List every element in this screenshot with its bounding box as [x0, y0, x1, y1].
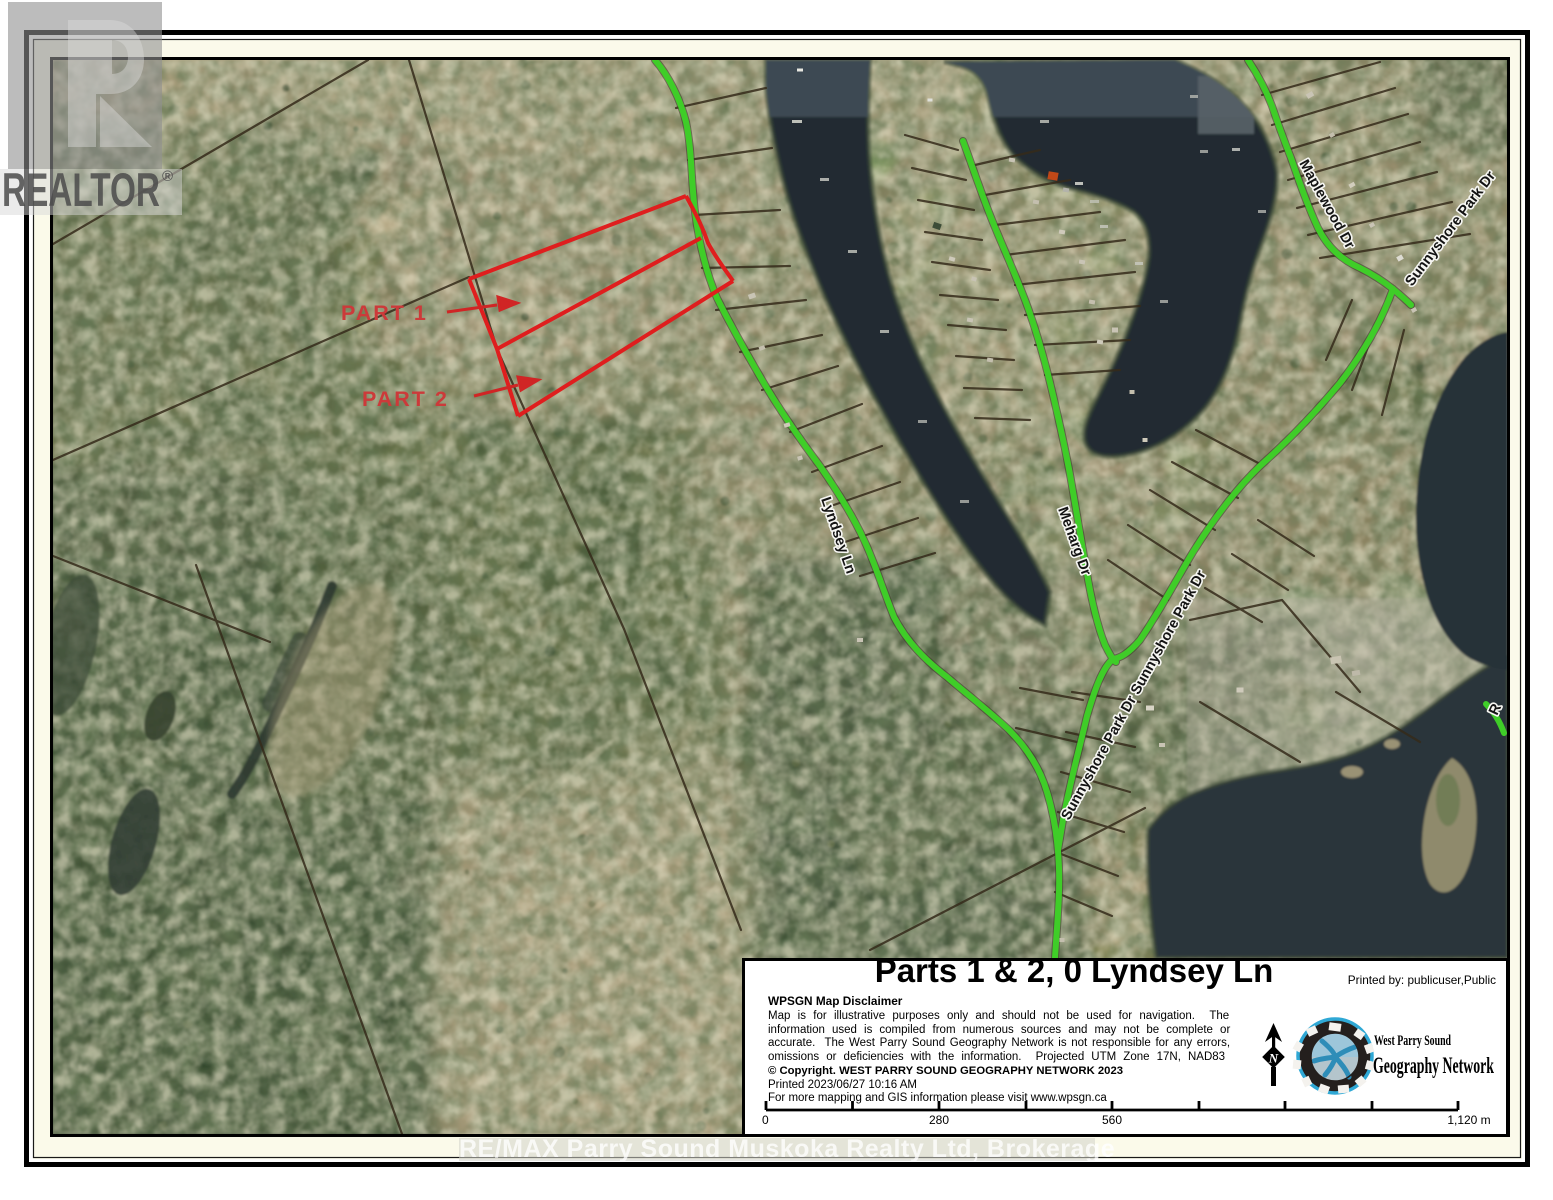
- svg-text:PART 2: PART 2: [362, 387, 449, 411]
- svg-text:®: ®: [162, 168, 173, 185]
- svg-text:560: 560: [1102, 1113, 1122, 1127]
- svg-text:REALTOR: REALTOR: [2, 163, 160, 216]
- svg-text:N: N: [1268, 1051, 1279, 1066]
- svg-text:West Parry Sound: West Parry Sound: [1374, 1033, 1451, 1049]
- svg-text:280: 280: [929, 1113, 949, 1127]
- svg-text:Geography Network: Geography Network: [1373, 1053, 1494, 1078]
- svg-text:1,120 m: 1,120 m: [1447, 1113, 1490, 1127]
- svg-text:0: 0: [762, 1113, 769, 1127]
- svg-text:PART 1: PART 1: [341, 301, 428, 325]
